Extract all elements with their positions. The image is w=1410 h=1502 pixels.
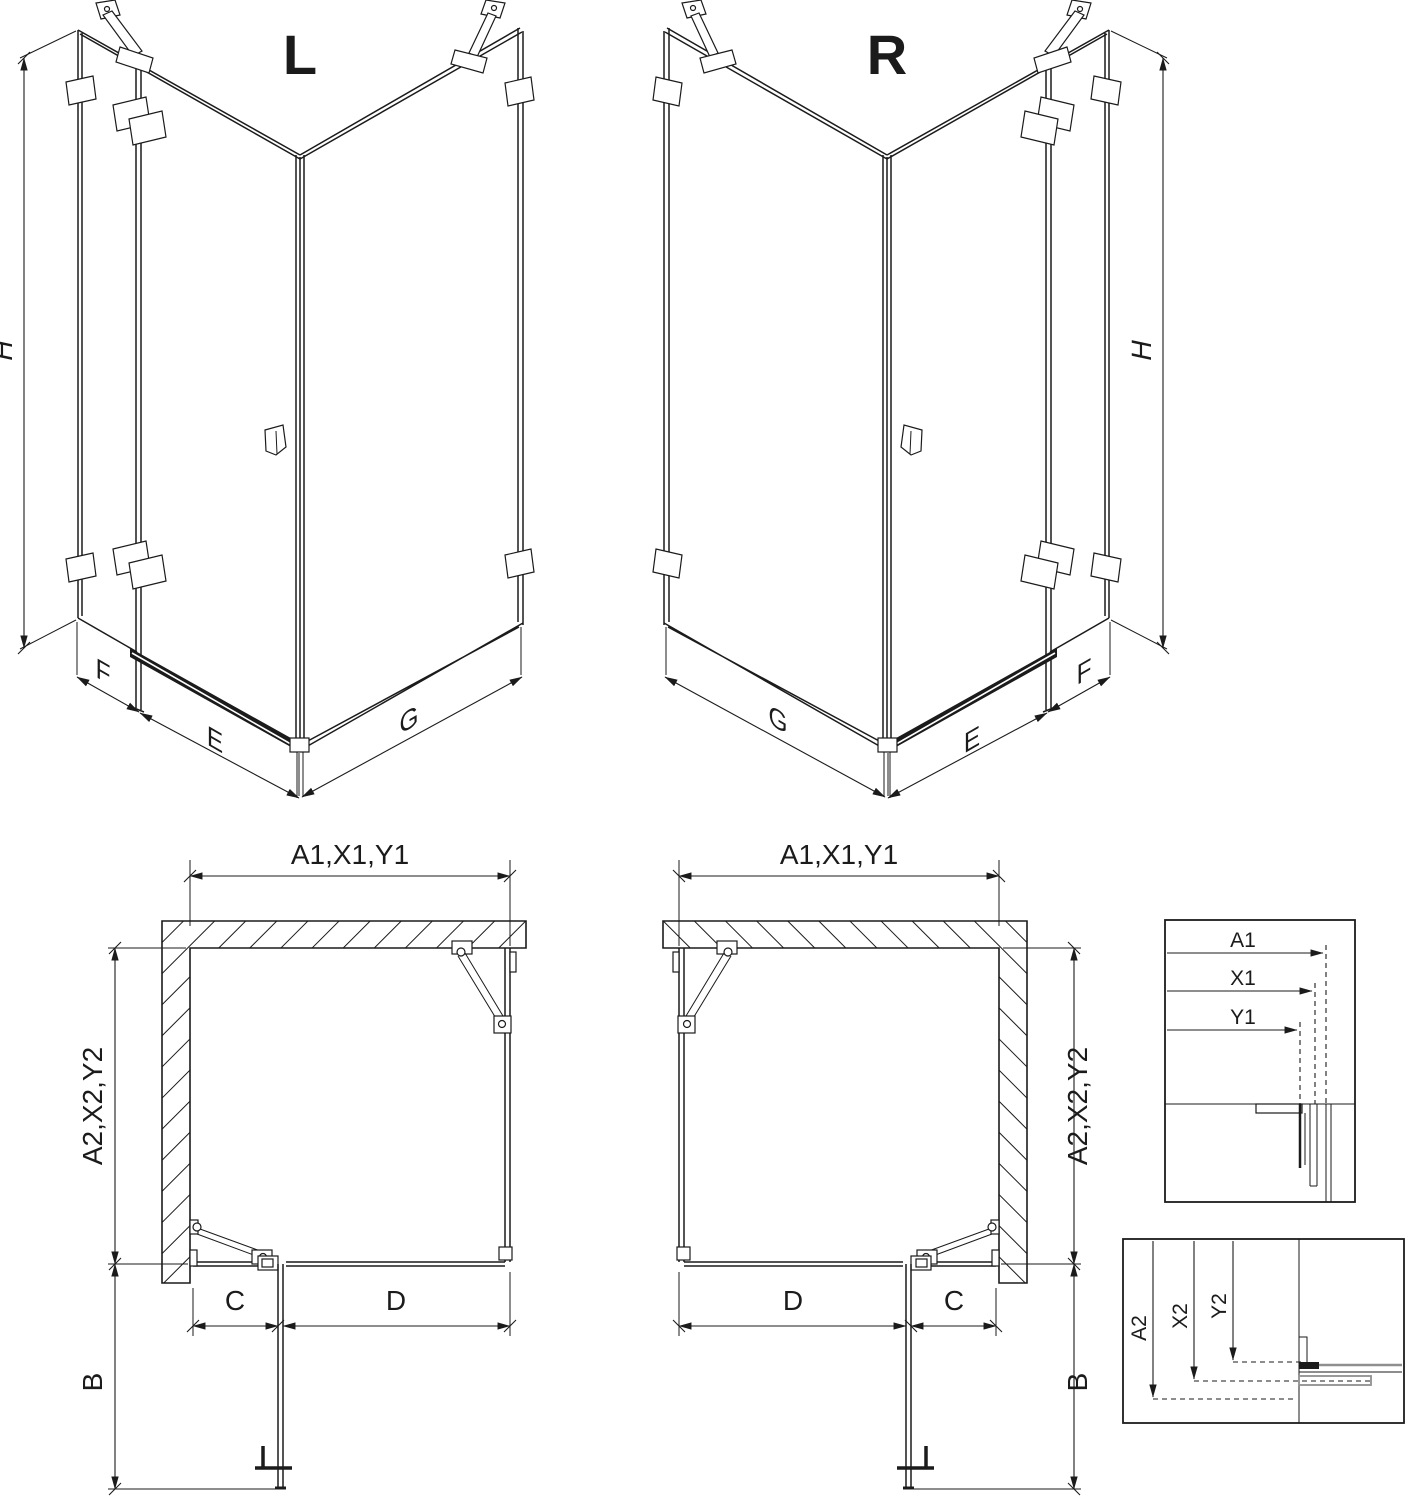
dim-label-depth: A2,X2,Y2 bbox=[1062, 1047, 1093, 1165]
shower-enclosure-drawing: L H F E G R H F E G A1,X1,Y1 A2,X2,Y2 C … bbox=[0, 0, 1410, 1502]
dim-label-d: D bbox=[386, 1285, 406, 1316]
detail-label-y1: Y1 bbox=[1230, 1006, 1256, 1029]
detail-label-a1: A1 bbox=[1230, 929, 1256, 952]
dim-label-g: G bbox=[769, 699, 788, 741]
detail-label-x2: X2 bbox=[1169, 1303, 1192, 1329]
dim-label-b: B bbox=[77, 1373, 108, 1392]
dim-label-d: D bbox=[783, 1285, 803, 1316]
dim-label-width: A1,X1,Y1 bbox=[291, 839, 409, 870]
iso-view-right: R H F E G bbox=[653, 0, 1169, 798]
iso-view-left: L H F E G bbox=[0, 0, 534, 798]
dim-label-f: F bbox=[96, 652, 111, 691]
plan-view-left: A1,X1,Y1 A2,X2,Y2 C D B bbox=[77, 839, 526, 1495]
dim-label-b: B bbox=[1062, 1373, 1093, 1392]
detail-box-depths: A2 X2 Y2 bbox=[1123, 1239, 1404, 1423]
detail-box-widths: A1 X1 Y1 bbox=[1165, 920, 1355, 1202]
dim-label-f: F bbox=[1077, 652, 1092, 691]
dim-label-e: E bbox=[964, 719, 980, 759]
dim-label-h: H bbox=[0, 336, 18, 363]
technical-drawing-page: L H F E G R H F E G A1,X1,Y1 A2,X2,Y2 C … bbox=[0, 0, 1410, 1502]
dim-label-h: H bbox=[1125, 336, 1157, 363]
dim-label-c: C bbox=[225, 1285, 245, 1316]
detail-label-a2: A2 bbox=[1128, 1315, 1151, 1341]
version-label-left: L bbox=[283, 23, 317, 86]
plan-view-right: A1,X1,Y1 A2,X2,Y2 C D B bbox=[663, 839, 1093, 1495]
dim-label-e: E bbox=[207, 719, 223, 759]
dim-label-g: G bbox=[400, 699, 419, 741]
dim-label-width: A1,X1,Y1 bbox=[780, 839, 898, 870]
dim-label-depth: A2,X2,Y2 bbox=[77, 1047, 108, 1165]
detail-label-y2: Y2 bbox=[1208, 1293, 1231, 1319]
dim-label-c: C bbox=[944, 1285, 964, 1316]
version-label-right: R bbox=[867, 23, 907, 86]
detail-label-x1: X1 bbox=[1230, 967, 1256, 990]
